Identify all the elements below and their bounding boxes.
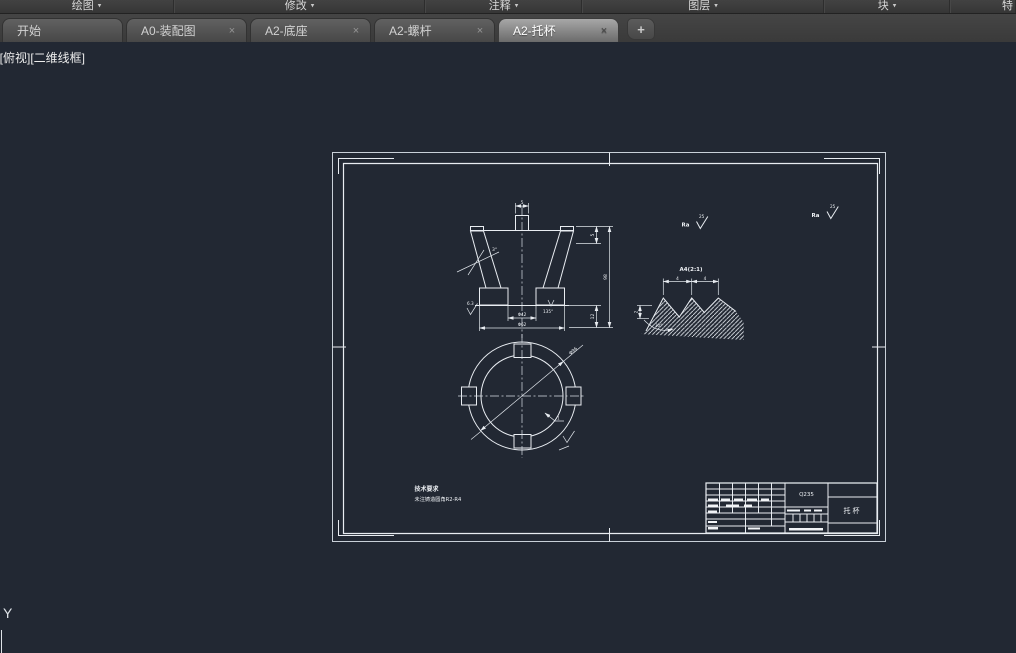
dim-pitch-right: 4: [704, 276, 707, 281]
title-block: Q235 托杯: [706, 483, 877, 533]
dim-pitch-left: 4: [676, 276, 679, 281]
chevron-down-icon: ▾: [515, 0, 519, 13]
notes-line: 未注铸造圆角R2-R4: [415, 495, 463, 503]
dim-step-height: 5: [590, 233, 596, 236]
chamfer-angle-label: 135°: [543, 309, 553, 314]
close-icon[interactable]: ×: [226, 25, 238, 37]
detail-view-label: A4(2:1): [680, 267, 703, 273]
new-tab-button[interactable]: +: [627, 18, 655, 40]
roughness-6-3-label: 6.3: [467, 301, 474, 306]
ribbon-bar: 绘图 ▾ 修改 ▾ 注释 ▾ 图层 ▾ 块 ▾ 特: [0, 0, 1016, 14]
ribbon-panel-layers[interactable]: 图层 ▾: [582, 0, 824, 13]
dim-plan-diameter: Φ96: [568, 346, 579, 357]
dim-taper-angle: 3°: [492, 247, 497, 253]
close-icon[interactable]: ×: [350, 25, 362, 37]
ribbon-panel-block[interactable]: 块 ▾: [824, 0, 950, 13]
roughness-prefix: Ra: [682, 223, 690, 229]
chevron-down-icon: ▾: [714, 0, 718, 13]
ribbon-panel-label: 块: [878, 0, 889, 13]
technical-notes: 技术要求 未注铸造圆角R2-R4: [415, 485, 463, 503]
chevron-down-icon: ▾: [893, 0, 897, 13]
model-space-canvas[interactable]: [-][俯视][二维线框] Y: [0, 42, 1016, 653]
tab-label: 开始: [17, 22, 114, 39]
tab-label: A2-底座: [265, 22, 350, 39]
ribbon-panel-annotate[interactable]: 注释 ▾: [425, 0, 582, 13]
plan-view: Φ96 1: [458, 334, 586, 458]
tab-a2-screw[interactable]: A2-螺杆 ×: [374, 18, 495, 42]
plan-leader-label: 1: [557, 416, 560, 421]
roughness-prefix: Ra: [812, 213, 820, 219]
ribbon-panel-properties[interactable]: 特: [950, 0, 1016, 13]
roughness-value: 25: [830, 204, 836, 209]
tab-a0-assembly[interactable]: A0-装配图 ×: [126, 18, 247, 42]
close-icon[interactable]: ×: [598, 25, 610, 37]
title-block-part-name: 托杯: [844, 506, 862, 515]
chevron-down-icon: ▾: [98, 0, 102, 13]
ribbon-panel-draw[interactable]: 绘图 ▾: [0, 0, 174, 13]
dim-flange-height: 12: [590, 314, 596, 320]
tab-label: A0-装配图: [141, 22, 226, 39]
ribbon-panel-label: 修改: [285, 0, 307, 13]
tab-start[interactable]: 开始: [2, 18, 123, 42]
roughness-annotation-corner: Ra 25: [812, 204, 839, 219]
drawing-sheet-svg: 5 5 12 98 Φ42 Φ62: [0, 42, 1016, 653]
chevron-down-icon: ▾: [311, 0, 315, 13]
dim-total-height: 98: [603, 274, 609, 280]
notes-title: 技术要求: [415, 485, 440, 493]
ribbon-panel-modify[interactable]: 修改 ▾: [174, 0, 425, 13]
dim-thread-depth: 2: [634, 310, 639, 313]
file-tab-bar: 开始 A0-装配图 × A2-底座 × A2-螺杆 × A2-托杯 × +: [0, 14, 1016, 42]
section-view: 5 5 12 98 Φ42 Φ62: [457, 200, 613, 338]
dim-outer-diameter: Φ62: [518, 322, 527, 327]
tab-a2-cup-active[interactable]: A2-托杯 ×: [498, 18, 619, 42]
plus-icon: +: [637, 22, 645, 37]
application-window: 绘图 ▾ 修改 ▾ 注释 ▾ 图层 ▾ 块 ▾ 特 开始 A0-装配图 ×: [0, 0, 1016, 653]
title-block-material: Q235: [799, 492, 814, 498]
ribbon-panel-label: 图层: [688, 0, 710, 13]
tab-a2-base[interactable]: A2-底座 ×: [250, 18, 371, 42]
dim-inner-diameter: Φ42: [518, 312, 527, 317]
dim-boss-width: 5: [521, 200, 524, 206]
roughness-check-icon: [563, 431, 575, 443]
ribbon-panel-label: 注释: [489, 0, 511, 13]
tab-label: A2-托杯: [513, 22, 598, 39]
tab-label: A2-螺杆: [389, 22, 474, 39]
ribbon-panel-label: 绘图: [72, 0, 94, 13]
roughness-value: 25: [699, 214, 705, 219]
close-icon[interactable]: ×: [474, 25, 486, 37]
ribbon-panel-label: 特: [1002, 0, 1013, 13]
roughness-annotation-mid: Ra 25: [682, 214, 708, 229]
thread-detail-view: A4(2:1) 4 4 2 30°: [634, 267, 745, 340]
dim-thread-angle: 30°: [655, 323, 662, 328]
